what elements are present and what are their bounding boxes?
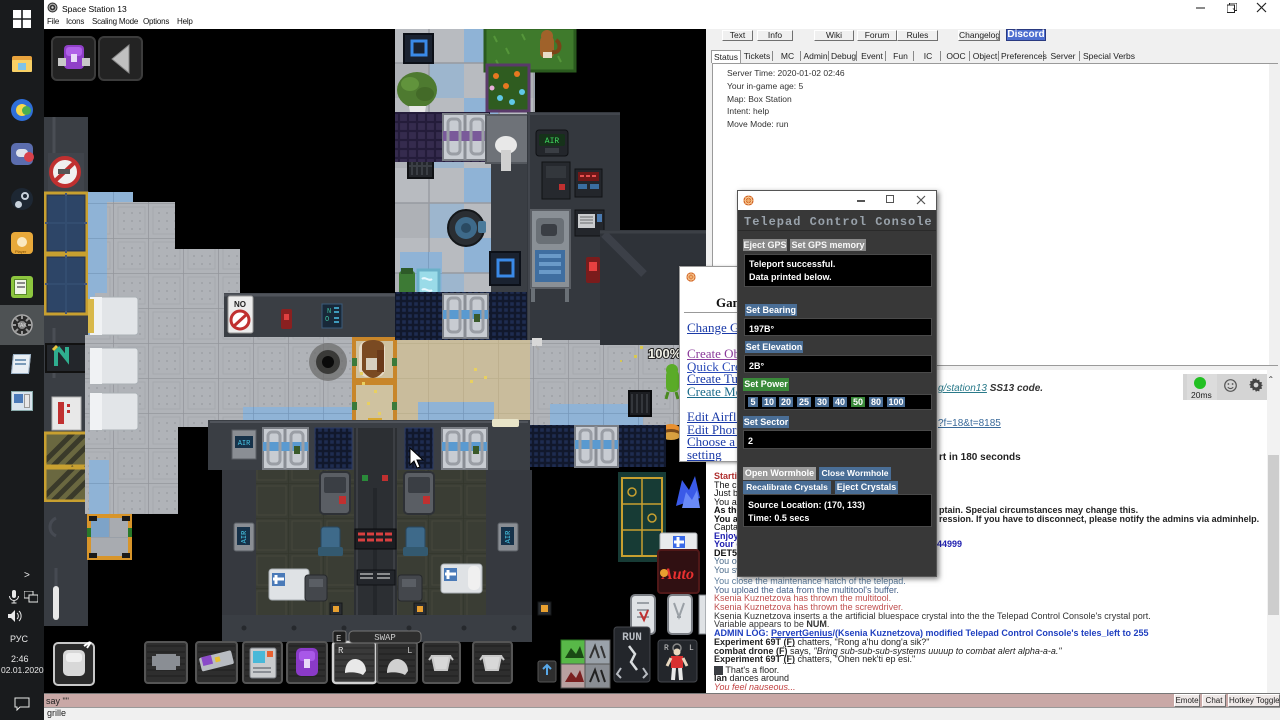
svg-text:N: N xyxy=(327,308,331,316)
svg-text:O: O xyxy=(325,316,329,324)
svg-text:SWAP: SWAP xyxy=(374,633,396,643)
svg-text:AIR: AIR xyxy=(241,530,249,543)
svg-text:L: L xyxy=(407,646,412,656)
svg-text:AIR: AIR xyxy=(545,137,560,146)
svg-text:AIR: AIR xyxy=(238,440,251,448)
svg-text:R: R xyxy=(664,644,669,653)
svg-text:R: R xyxy=(338,646,344,656)
svg-text:TAK: TAK xyxy=(17,323,27,329)
svg-text:100%: 100% xyxy=(648,346,682,361)
svg-text:AIR: AIR xyxy=(505,530,513,543)
svg-text:L: L xyxy=(689,644,694,653)
svg-text:E: E xyxy=(336,634,341,644)
svg-text:RUN: RUN xyxy=(622,632,642,644)
svg-text:NO: NO xyxy=(234,300,246,309)
